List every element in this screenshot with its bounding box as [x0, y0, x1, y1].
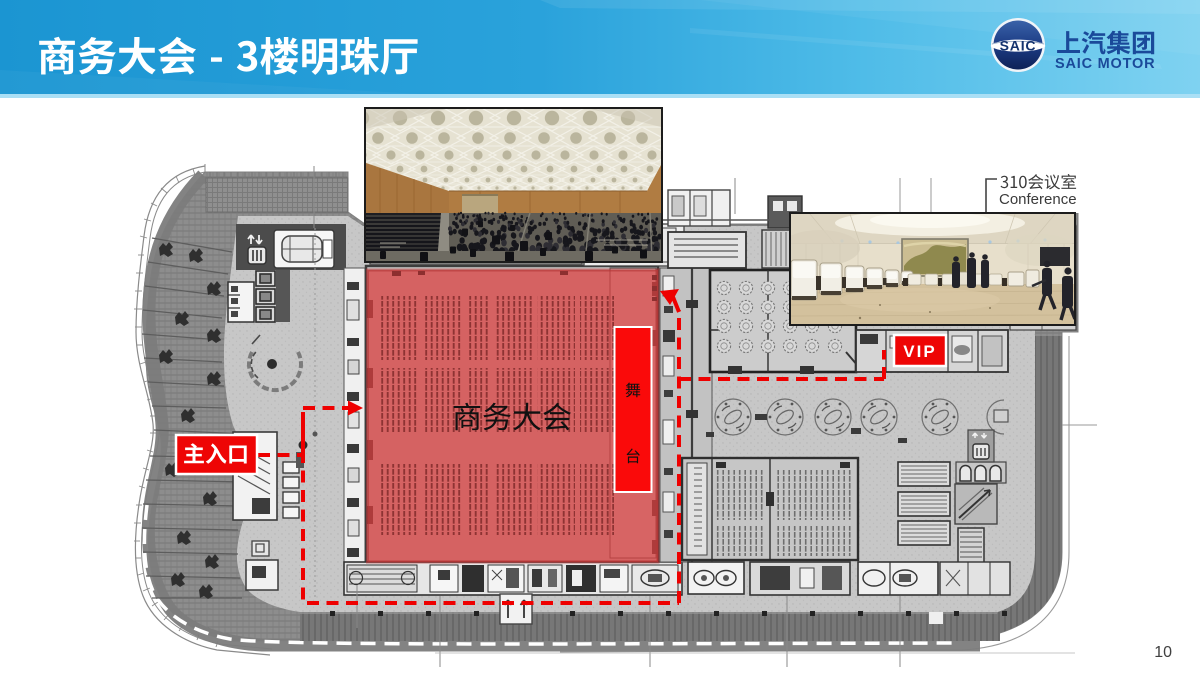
- svg-text:SAIC MOTOR: SAIC MOTOR: [1055, 56, 1155, 72]
- svg-text:VIP: VIP: [903, 342, 936, 361]
- svg-text:Conference: Conference: [999, 191, 1077, 208]
- svg-text:SAIC: SAIC: [1000, 38, 1037, 54]
- svg-text:10: 10: [1154, 644, 1172, 661]
